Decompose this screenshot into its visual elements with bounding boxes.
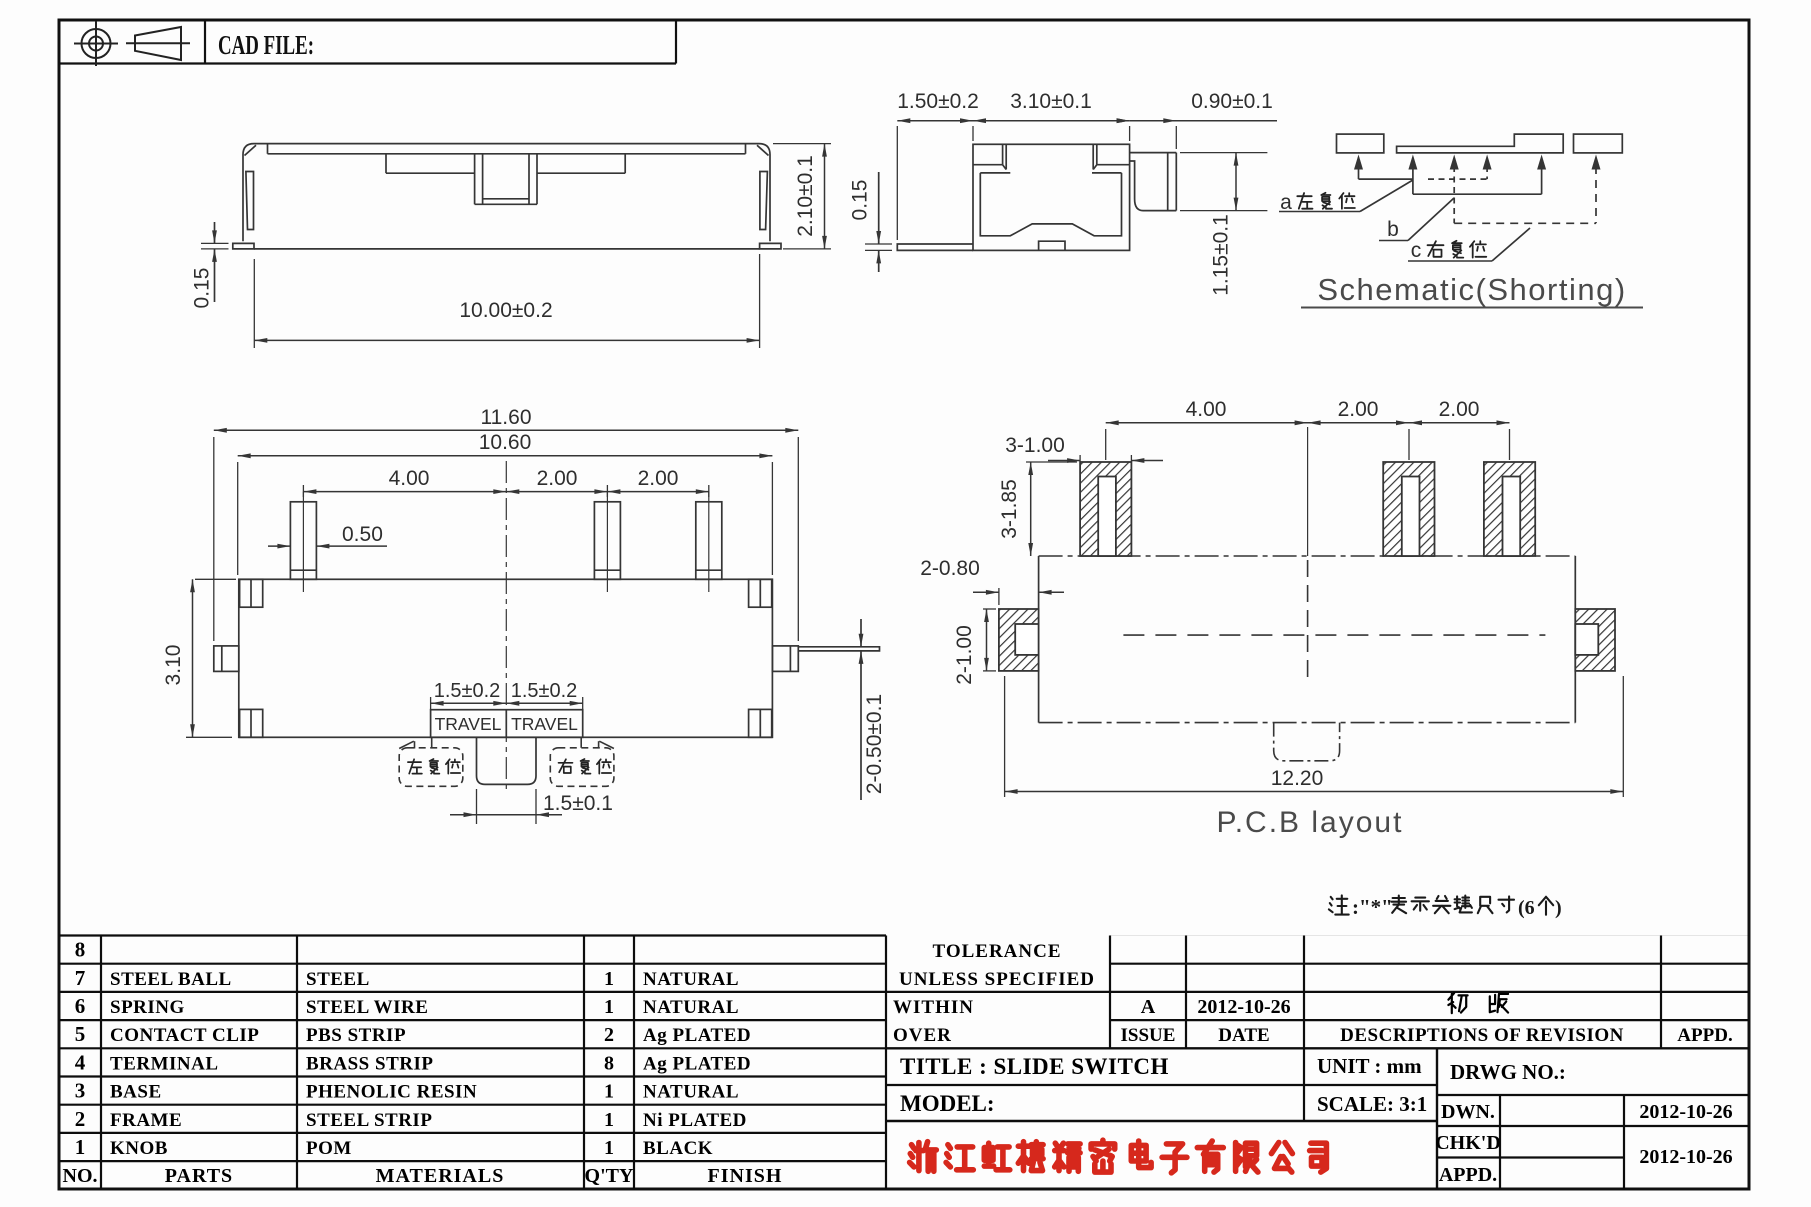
svg-text:NATURAL: NATURAL (643, 997, 739, 1018)
svg-text:STEEL: STEEL (306, 969, 370, 990)
svg-text:PHENOLIC RESIN: PHENOLIC RESIN (306, 1082, 477, 1103)
svg-text:1.50±0.2: 1.50±0.2 (897, 90, 979, 113)
svg-text:NATURAL: NATURAL (643, 1082, 739, 1103)
svg-text:2012-10-26: 2012-10-26 (1639, 1101, 1732, 1123)
svg-text:2012-10-26: 2012-10-26 (1197, 996, 1290, 1018)
svg-text:1: 1 (604, 1109, 614, 1131)
svg-text:Schematic(Shorting): Schematic(Shorting) (1317, 272, 1626, 307)
svg-text:BLACK: BLACK (643, 1138, 713, 1159)
svg-text:CHK'D: CHK'D (1435, 1132, 1501, 1154)
svg-text:2.00: 2.00 (537, 467, 578, 490)
svg-text:MODEL:: MODEL: (900, 1091, 995, 1116)
svg-text:BASE: BASE (110, 1082, 162, 1103)
svg-text:STEEL WIRE: STEEL WIRE (306, 997, 428, 1018)
svg-text:8: 8 (75, 938, 86, 962)
svg-text:): ) (1555, 897, 1562, 919)
svg-text:2.00: 2.00 (1439, 398, 1480, 421)
svg-text:PARTS: PARTS (165, 1165, 233, 1187)
svg-text:3-1.00: 3-1.00 (1005, 434, 1065, 457)
svg-text:A: A (1141, 996, 1156, 1018)
svg-text:ISSUE: ISSUE (1121, 1025, 1176, 1046)
svg-text:CAD FILE:: CAD FILE: (218, 30, 314, 60)
svg-text:2012-10-26: 2012-10-26 (1639, 1146, 1732, 1168)
svg-text:DATE: DATE (1218, 1025, 1269, 1046)
svg-text:3: 3 (75, 1079, 86, 1103)
svg-text:1: 1 (604, 968, 614, 990)
svg-text:2: 2 (75, 1107, 86, 1131)
svg-text:STEEL BALL: STEEL BALL (110, 969, 232, 990)
svg-text:1.5±0.2: 1.5±0.2 (434, 680, 501, 702)
svg-text:3.10: 3.10 (162, 645, 185, 686)
svg-text:11.60: 11.60 (481, 406, 532, 429)
svg-text:UNIT : mm: UNIT : mm (1317, 1054, 1422, 1078)
svg-text::"*": :"*" (1352, 895, 1393, 919)
svg-text:UNLESS SPECIFIED: UNLESS SPECIFIED (899, 969, 1095, 990)
svg-text:FINISH: FINISH (708, 1165, 783, 1187)
svg-text:4.00: 4.00 (389, 467, 430, 490)
svg-text:7: 7 (75, 966, 86, 990)
svg-text:4: 4 (75, 1050, 86, 1074)
svg-text:FRAME: FRAME (110, 1110, 182, 1131)
svg-text:(6: (6 (1518, 897, 1535, 919)
svg-text:c: c (1411, 239, 1422, 262)
svg-text:KNOB: KNOB (110, 1138, 168, 1159)
svg-text:2.00: 2.00 (1338, 398, 1379, 421)
svg-text:0.15: 0.15 (191, 268, 214, 309)
svg-text:1.5±0.2: 1.5±0.2 (511, 680, 578, 702)
svg-text:PBS STRIP: PBS STRIP (306, 1025, 406, 1046)
svg-text:POM: POM (306, 1138, 352, 1159)
svg-text:10.60: 10.60 (479, 431, 532, 454)
svg-text:TITLE : SLIDE SWITCH: TITLE : SLIDE SWITCH (900, 1054, 1169, 1079)
svg-text:TRAVEL: TRAVEL (435, 714, 502, 734)
svg-text:1: 1 (604, 1137, 614, 1159)
svg-text:APPD.: APPD. (1439, 1164, 1497, 1186)
svg-text:2.10±0.1: 2.10±0.1 (794, 155, 817, 237)
svg-text:Ag PLATED: Ag PLATED (643, 1053, 751, 1074)
svg-text:APPD.: APPD. (1677, 1025, 1732, 1046)
svg-text:0.90±0.1: 0.90±0.1 (1191, 90, 1273, 113)
svg-text:2.00: 2.00 (638, 467, 679, 490)
svg-text:P.C.B layout: P.C.B layout (1217, 806, 1404, 839)
svg-text:2-0.50±0.1: 2-0.50±0.1 (863, 694, 886, 794)
svg-text:DWN.: DWN. (1441, 1101, 1495, 1123)
svg-text:MATERIALS: MATERIALS (376, 1165, 505, 1187)
svg-text:BRASS STRIP: BRASS STRIP (306, 1053, 433, 1074)
svg-text:10.00±0.2: 10.00±0.2 (459, 299, 552, 322)
svg-text:2: 2 (604, 1024, 614, 1046)
svg-text:Ag PLATED: Ag PLATED (643, 1025, 751, 1046)
svg-text:8: 8 (604, 1052, 614, 1074)
svg-text:1: 1 (75, 1135, 86, 1159)
svg-text:0.50: 0.50 (342, 523, 383, 546)
svg-text:TERMINAL: TERMINAL (110, 1053, 219, 1074)
svg-text:1: 1 (604, 996, 614, 1018)
svg-text:DRWG NO.:: DRWG NO.: (1450, 1060, 1566, 1084)
svg-text:CONTACT CLIP: CONTACT CLIP (110, 1025, 259, 1046)
svg-text:3.10±0.1: 3.10±0.1 (1010, 90, 1092, 113)
svg-text:3-1.85: 3-1.85 (998, 479, 1021, 539)
svg-text:1.5±0.1: 1.5±0.1 (543, 792, 613, 815)
svg-text:b: b (1387, 218, 1399, 241)
svg-text:OVER: OVER (893, 1025, 952, 1046)
svg-text:NO.: NO. (63, 1165, 98, 1187)
svg-text:1.15±0.1: 1.15±0.1 (1210, 214, 1233, 296)
svg-text:DESCRIPTIONS OF REVISION: DESCRIPTIONS OF REVISION (1340, 1025, 1624, 1046)
svg-text:0.15: 0.15 (849, 180, 872, 221)
svg-text:WITHIN: WITHIN (893, 997, 974, 1018)
svg-text:a: a (1280, 191, 1292, 214)
svg-text:SPRING: SPRING (110, 997, 185, 1018)
svg-text:Ni PLATED: Ni PLATED (643, 1110, 747, 1131)
svg-text:NATURAL: NATURAL (643, 969, 739, 990)
svg-text:TRAVEL: TRAVEL (511, 714, 578, 734)
svg-text:STEEL STRIP: STEEL STRIP (306, 1110, 432, 1131)
svg-text:4.00: 4.00 (1186, 398, 1227, 421)
svg-text:5: 5 (75, 1022, 86, 1046)
svg-text:6: 6 (75, 994, 86, 1018)
svg-text:SCALE: 3:1: SCALE: 3:1 (1317, 1092, 1427, 1116)
svg-text:Q'TY: Q'TY (585, 1165, 634, 1187)
svg-text:12.20: 12.20 (1271, 767, 1324, 790)
svg-text:2-1.00: 2-1.00 (953, 625, 976, 685)
svg-text:1: 1 (604, 1081, 614, 1103)
svg-text:2-0.80: 2-0.80 (920, 557, 980, 580)
svg-text:TOLERANCE: TOLERANCE (932, 941, 1061, 962)
